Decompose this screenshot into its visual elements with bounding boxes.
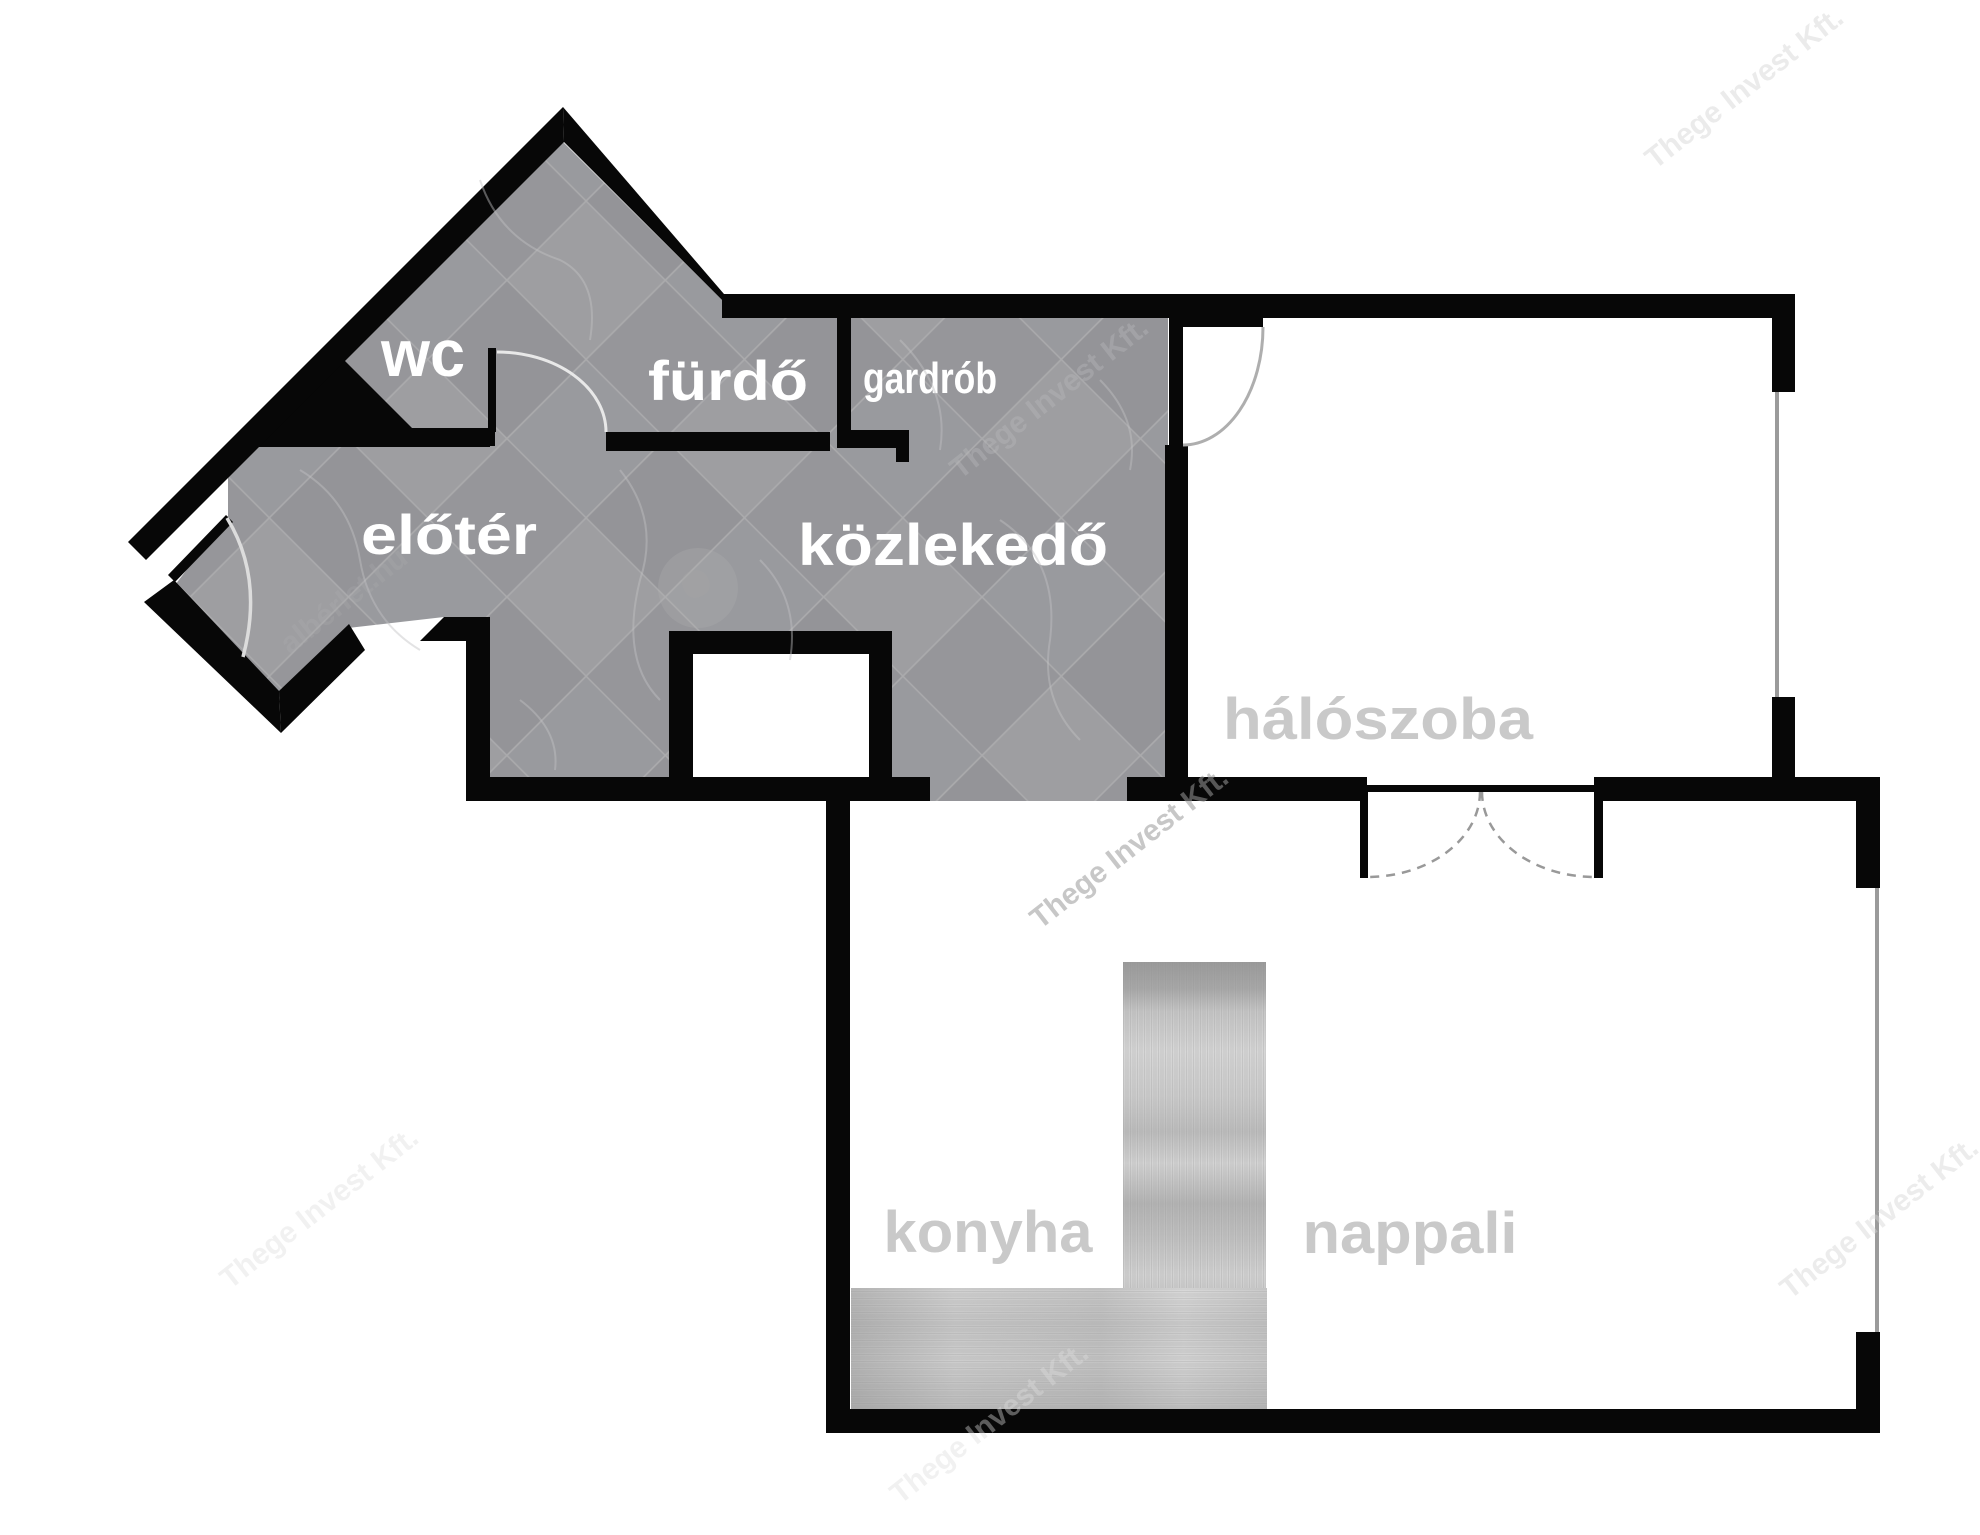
svg-text:fürdő: fürdő xyxy=(648,349,808,412)
svg-text:hálószoba: hálószoba xyxy=(1223,687,1534,752)
svg-text:gardrób: gardrób xyxy=(863,354,997,403)
svg-text:közlekedő: közlekedő xyxy=(798,513,1108,578)
svg-text:wc: wc xyxy=(380,316,465,390)
svg-text:konyha: konyha xyxy=(884,1200,1094,1265)
svg-text:nappali: nappali xyxy=(1303,1201,1518,1266)
